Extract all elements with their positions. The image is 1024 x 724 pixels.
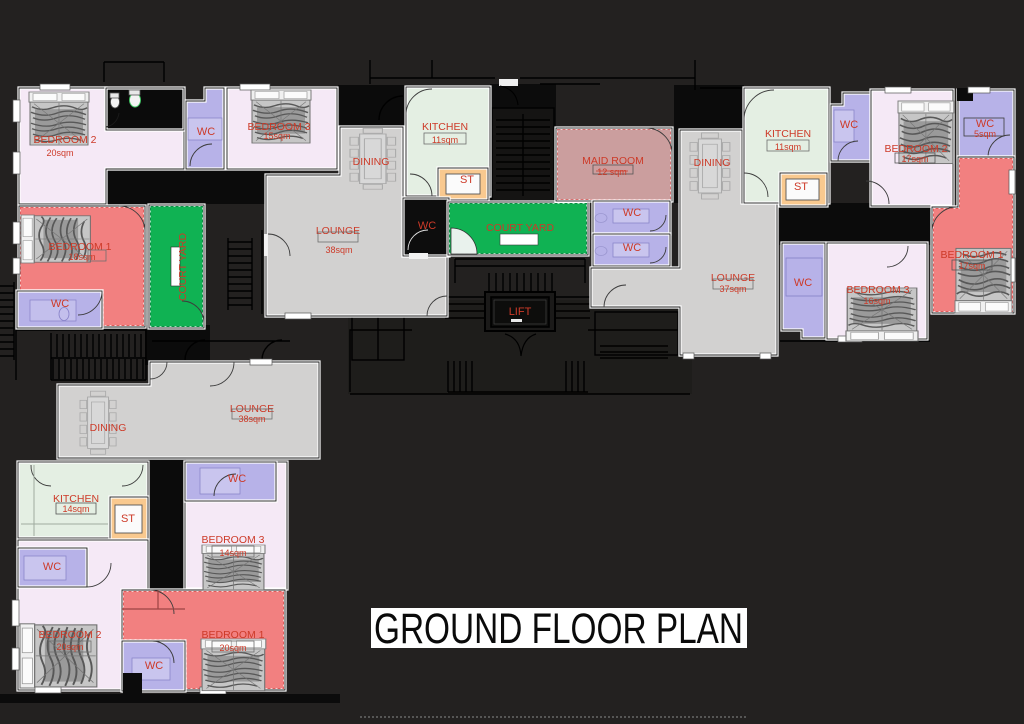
svg-text:38sqm: 38sqm xyxy=(238,414,265,424)
svg-text:14sqm: 14sqm xyxy=(62,504,89,514)
svg-text:BEDROOM 1: BEDROOM 1 xyxy=(201,629,264,641)
svg-text:12 sqm: 12 sqm xyxy=(597,167,627,177)
svg-text:20sqm: 20sqm xyxy=(56,642,83,652)
svg-text:WC: WC xyxy=(51,298,69,310)
svg-text:WC: WC xyxy=(623,242,641,254)
svg-text:17sqm: 17sqm xyxy=(901,154,928,164)
svg-text:DINING: DINING xyxy=(353,156,390,168)
svg-text:11sqm: 11sqm xyxy=(432,135,458,145)
svg-text:COURT YARD: COURT YARD xyxy=(486,222,554,234)
svg-text:38sqm: 38sqm xyxy=(325,245,352,255)
svg-text:BEDROOM 3: BEDROOM 3 xyxy=(201,534,264,546)
svg-text:WC: WC xyxy=(840,119,858,131)
svg-text:14sqm: 14sqm xyxy=(219,548,246,558)
svg-text:LIFT: LIFT xyxy=(509,306,532,318)
svg-text:KITCHEN: KITCHEN xyxy=(765,128,811,140)
svg-text:WC: WC xyxy=(197,126,215,138)
svg-text:18sqm: 18sqm xyxy=(68,252,95,262)
svg-text:KITCHEN: KITCHEN xyxy=(422,121,468,133)
svg-text:LOUNGE: LOUNGE xyxy=(316,225,360,237)
svg-text:WC: WC xyxy=(794,277,812,289)
svg-text:16sqm: 16sqm xyxy=(863,296,890,306)
svg-text:COURT YARD: COURT YARD xyxy=(177,233,189,301)
svg-text:WC: WC xyxy=(145,660,163,672)
svg-text:37sqm: 37sqm xyxy=(719,284,746,294)
svg-text:20sqm: 20sqm xyxy=(46,148,73,158)
svg-text:20sqm: 20sqm xyxy=(219,643,246,653)
svg-text:DINING: DINING xyxy=(90,422,127,434)
svg-text:ST: ST xyxy=(121,513,135,525)
svg-text:17sqm: 17sqm xyxy=(958,261,985,271)
svg-text:BEDROOM 3: BEDROOM 3 xyxy=(846,284,909,296)
svg-text:11sqm: 11sqm xyxy=(775,142,801,152)
svg-text:15sqm: 15sqm xyxy=(263,131,290,141)
svg-text:WC: WC xyxy=(228,473,246,485)
svg-text:WC: WC xyxy=(43,561,61,573)
svg-text:ST: ST xyxy=(794,181,808,193)
svg-text:WC: WC xyxy=(418,220,436,232)
svg-text:ST: ST xyxy=(460,174,474,186)
svg-text:DINING: DINING xyxy=(694,157,731,169)
svg-text:BEDROOM 1: BEDROOM 1 xyxy=(940,249,1003,261)
svg-text:GROUND FLOOR PLAN: GROUND FLOOR PLAN xyxy=(374,605,743,653)
svg-text:LOUNGE: LOUNGE xyxy=(711,272,755,284)
svg-text:5sqm: 5sqm xyxy=(974,129,996,139)
svg-text:BEDROOM 2: BEDROOM 2 xyxy=(38,629,101,641)
svg-text:WC: WC xyxy=(623,207,641,219)
svg-text:BEDROOM 2: BEDROOM 2 xyxy=(33,134,96,146)
